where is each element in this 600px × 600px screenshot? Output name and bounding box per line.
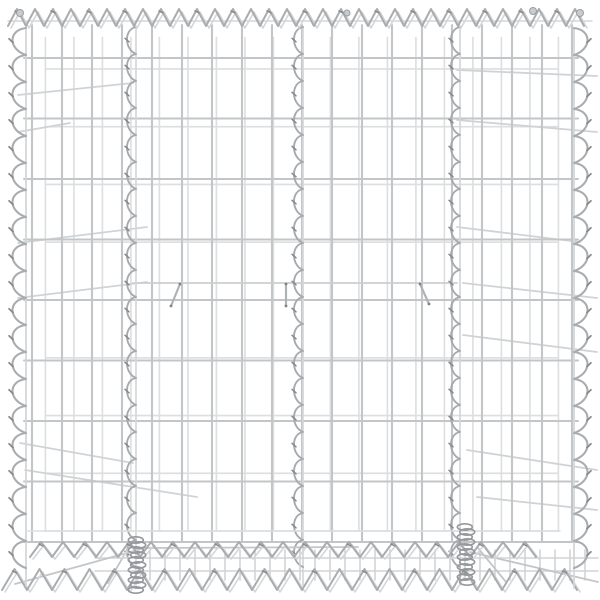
gabion-basket-illustration: [0, 0, 600, 600]
gabion-basket-photo: [0, 0, 600, 600]
